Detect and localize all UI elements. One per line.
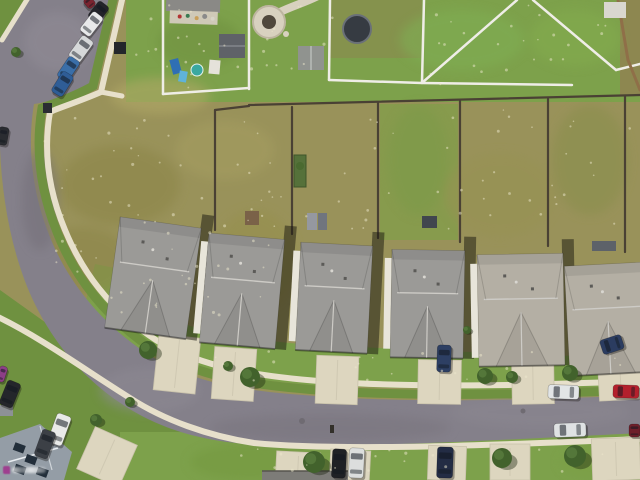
weed-speckle <box>505 367 508 370</box>
weed-speckle <box>529 199 532 202</box>
weed-speckle <box>600 32 603 35</box>
weed-speckle <box>351 228 353 230</box>
weed-speckle <box>364 219 367 222</box>
weed-speckle <box>452 116 455 119</box>
weed-speckle <box>194 283 196 285</box>
weed-speckle <box>187 87 189 89</box>
tree-highlight <box>564 367 572 375</box>
weed-speckle <box>443 43 446 46</box>
weed-speckle <box>562 58 564 60</box>
weed-speckle <box>167 135 169 137</box>
maroon-car-right-edge <box>629 424 640 439</box>
tree-highlight <box>126 398 131 403</box>
roof-hip-shade <box>477 253 563 264</box>
roof-hip-shade <box>392 249 465 260</box>
weed-speckle <box>291 67 293 69</box>
weed-speckle <box>421 352 424 355</box>
rear-window <box>350 469 362 474</box>
weed-speckle <box>436 191 439 194</box>
weed-speckle <box>497 130 500 133</box>
weed-speckle <box>334 467 336 469</box>
tree-highlight <box>224 362 229 367</box>
weed-speckle <box>226 268 229 271</box>
weed-speckle <box>280 196 282 198</box>
ac-unit <box>318 213 327 230</box>
house-3 <box>288 228 384 355</box>
tree-highlight <box>305 453 316 464</box>
weed-speckle <box>552 34 555 37</box>
windshield <box>631 426 639 429</box>
roof-vent <box>413 269 416 272</box>
weed-speckle <box>268 244 270 246</box>
weed-speckle <box>330 469 332 471</box>
house-6 <box>563 247 640 376</box>
ac-unit <box>307 213 317 230</box>
weed-speckle <box>446 147 448 149</box>
rear-window <box>570 387 575 398</box>
weed-speckle <box>74 117 77 120</box>
weed-speckle <box>247 220 249 222</box>
weed-speckle <box>510 25 513 28</box>
weed-speckle <box>248 172 250 174</box>
weed-speckle <box>523 40 525 42</box>
weed-speckle <box>113 150 115 152</box>
weed-speckle <box>273 225 275 227</box>
weed-speckle <box>154 48 157 51</box>
navy-van-bottom <box>436 447 455 480</box>
shed-2 <box>298 46 324 70</box>
weed-speckle <box>250 208 252 210</box>
weed-speckle <box>269 162 271 164</box>
red-car-street <box>613 385 640 401</box>
weed-speckle <box>374 147 377 150</box>
weed-speckle <box>448 228 450 230</box>
car-body <box>613 385 639 399</box>
white-car-street-north <box>548 384 582 401</box>
weed-speckle <box>215 357 217 359</box>
tree-highlight <box>507 372 513 378</box>
weed-speckle <box>80 250 82 252</box>
rear-window <box>576 424 581 435</box>
manhole-cover <box>521 409 526 414</box>
top-house <box>165 0 220 25</box>
rear-window <box>438 469 451 474</box>
weed-speckle <box>61 187 63 189</box>
weed-speckle <box>143 282 145 284</box>
rear-window <box>631 387 635 397</box>
weed-speckle <box>244 121 246 123</box>
weed-speckle <box>372 357 374 359</box>
weed-speckle <box>223 224 226 227</box>
weed-speckle <box>466 378 467 379</box>
car-body <box>548 384 579 399</box>
weed-speckle <box>493 171 495 173</box>
weed-speckle <box>359 356 361 358</box>
weed-speckle <box>237 163 239 165</box>
tree-highlight <box>91 415 97 421</box>
weed-speckle <box>201 197 204 200</box>
weed-speckle <box>454 372 456 374</box>
mailbox-post <box>330 425 334 433</box>
kiddie-pool <box>191 64 203 76</box>
weed-speckle <box>222 363 224 365</box>
windshield <box>553 386 560 397</box>
watermark-text-illegible <box>12 467 46 473</box>
weed-speckle <box>268 191 270 193</box>
weed-speckle <box>185 283 187 285</box>
weed-speckle <box>257 133 259 135</box>
weed-speckle <box>147 50 149 52</box>
weed-speckle <box>217 264 220 267</box>
weed-speckle <box>459 212 462 215</box>
weed-speckle <box>404 452 407 455</box>
weed-speckle <box>266 64 268 66</box>
weed-speckle <box>250 67 253 70</box>
weed-speckle <box>156 306 158 308</box>
roof-vent <box>617 296 620 299</box>
weed-speckle <box>257 448 259 450</box>
trampoline <box>343 15 371 43</box>
windshield <box>351 453 363 460</box>
weed-speckle <box>563 193 566 196</box>
weed-speckle <box>178 9 180 11</box>
weed-speckle <box>135 54 137 56</box>
weed-speckle <box>614 357 616 359</box>
weed-speckle <box>100 175 102 177</box>
weed-speckle <box>188 277 191 280</box>
weed-speckle <box>567 44 570 47</box>
weed-speckle <box>218 313 221 316</box>
weed-speckle <box>505 68 508 71</box>
weed-speckle <box>156 302 158 304</box>
weed-speckle <box>166 66 168 68</box>
weed-speckle <box>358 363 360 365</box>
doghouse <box>245 211 259 225</box>
weed-speckle <box>291 469 294 472</box>
weed-speckle <box>538 14 540 16</box>
weed-speckle <box>388 192 390 194</box>
roof-vent <box>503 274 506 277</box>
weed-speckle <box>450 21 452 23</box>
weed-speckle <box>252 240 255 243</box>
weed-speckle <box>198 43 200 45</box>
rear-window <box>631 433 639 435</box>
weed-speckle <box>267 350 270 353</box>
weed-speckle <box>253 379 255 381</box>
weed-speckle <box>44 140 47 143</box>
weed-speckle <box>186 35 188 37</box>
weed-speckle <box>374 455 376 457</box>
weed-speckle <box>263 266 265 268</box>
roof-vent <box>253 270 256 273</box>
weed-speckle <box>120 311 122 313</box>
weed-speckle <box>533 59 535 61</box>
weed-speckle <box>619 364 621 366</box>
windshield <box>439 350 450 356</box>
weed-speckle <box>130 147 132 149</box>
tree-highlight <box>464 327 468 331</box>
weed-speckle <box>303 63 305 65</box>
weed-speckle <box>171 248 172 249</box>
weed-speckle <box>92 178 95 181</box>
weed-speckle <box>184 61 187 64</box>
shed-1 <box>219 34 245 58</box>
weed-speckle <box>261 199 263 201</box>
weed-speckle <box>306 464 308 466</box>
weed-speckle <box>369 119 371 121</box>
aerial-neighborhood-photo <box>0 0 640 480</box>
weed-speckle <box>435 13 438 16</box>
weed-speckle <box>55 261 57 263</box>
rear-window <box>438 364 449 368</box>
windshield <box>334 454 345 460</box>
watermark <box>3 466 46 474</box>
weed-speckle <box>392 133 393 134</box>
weed-speckle <box>388 449 390 451</box>
weed-speckle <box>403 460 405 462</box>
weed-speckle <box>463 32 466 35</box>
weed-speckle <box>602 453 604 455</box>
weed-speckle <box>138 155 139 156</box>
driveway-b6 <box>591 437 640 480</box>
tree-highlight <box>566 447 577 458</box>
weed-speckle <box>149 279 152 282</box>
weed-speckle <box>537 39 539 41</box>
weed-speckle <box>109 201 112 204</box>
tree-highlight <box>479 370 487 378</box>
weed-speckle <box>279 453 282 456</box>
weed-speckle <box>190 11 192 13</box>
weed-speckle <box>62 214 64 216</box>
weed-speckle <box>203 50 205 52</box>
weed-speckle <box>136 127 138 129</box>
weed-speckle <box>305 215 307 217</box>
weed-speckle <box>344 172 346 174</box>
driveway-1 <box>153 334 201 394</box>
shed-3 <box>604 2 626 18</box>
weed-speckle <box>338 200 340 202</box>
weed-speckle <box>391 373 393 375</box>
roof-vent <box>321 263 324 266</box>
weed-speckle <box>223 44 225 46</box>
weed-speckle <box>483 198 485 200</box>
manhole-cover <box>299 418 305 424</box>
weed-speckle <box>76 270 78 272</box>
mailbox <box>43 103 52 113</box>
weed-speckle <box>322 43 325 46</box>
weed-speckle <box>366 209 369 212</box>
weed-speckle <box>525 375 528 378</box>
weed-speckle <box>593 174 595 176</box>
rear-window <box>333 470 344 475</box>
weed-speckle <box>262 50 265 53</box>
weed-speckle <box>190 73 192 75</box>
windshield <box>439 452 452 459</box>
weed-speckle <box>438 42 440 44</box>
tree-highlight <box>242 369 252 379</box>
weed-speckle <box>531 126 533 128</box>
roof-vent <box>531 287 534 290</box>
weed-speckle <box>236 66 239 69</box>
weed-speckle <box>565 153 567 155</box>
tree-highlight <box>494 450 504 460</box>
weed-speckle <box>539 213 542 216</box>
weed-speckle <box>300 5 302 7</box>
weed-speckle <box>272 360 275 363</box>
weed-speckle <box>554 196 556 198</box>
weed-speckle <box>144 221 146 223</box>
weed-speckle <box>260 296 262 298</box>
weed-speckle <box>240 454 243 457</box>
weed-speckle <box>597 24 599 26</box>
weed-speckle <box>367 469 370 472</box>
watermark-logo-icon <box>3 466 10 474</box>
weed-speckle <box>155 304 158 307</box>
weed-speckle <box>159 162 161 164</box>
weed-speckle <box>497 43 499 45</box>
weed-speckle <box>473 64 476 67</box>
weed-speckle <box>266 38 269 41</box>
weed-speckle <box>271 31 272 32</box>
weed-speckle <box>613 223 615 225</box>
white-suv-bottom <box>348 448 367 480</box>
weed-speckle <box>66 169 67 170</box>
weed-speckle <box>177 37 180 40</box>
weed-speckle <box>573 121 575 123</box>
weed-speckle <box>95 257 97 259</box>
weed-speckle <box>252 366 254 368</box>
garden-bed <box>294 155 306 187</box>
weed-speckle <box>503 109 504 110</box>
weed-speckle <box>137 214 139 216</box>
car-body <box>554 422 586 437</box>
weed-speckle <box>207 296 209 298</box>
weed-speckle <box>441 370 444 373</box>
roof-vent <box>437 283 440 286</box>
weed-speckle <box>480 70 483 73</box>
weed-speckle <box>179 164 181 166</box>
windshield <box>618 386 624 396</box>
weed-speckle <box>452 82 453 83</box>
white-car-street-south <box>554 422 589 439</box>
weed-speckle <box>143 119 146 122</box>
top-house-patio <box>169 10 217 25</box>
weed-speckle <box>555 203 557 205</box>
tree-highlight <box>12 48 17 53</box>
weed-speckle <box>561 470 564 473</box>
navy-car-driveway-4 <box>436 345 453 375</box>
weed-speckle <box>508 116 510 118</box>
weed-speckle <box>528 5 530 7</box>
weed-speckle <box>366 379 369 382</box>
weed-speckle <box>430 73 431 74</box>
house-4 <box>383 235 476 359</box>
weed-speckle <box>550 58 553 61</box>
windshield <box>560 425 567 436</box>
roof-vent <box>590 285 593 288</box>
weed-speckle <box>628 127 631 130</box>
weed-speckle <box>172 213 175 216</box>
weed-speckle <box>444 465 447 468</box>
weed-speckle <box>482 180 484 182</box>
weed-speckle <box>439 83 441 85</box>
roof-vent <box>344 277 347 280</box>
weed-speckle <box>120 291 123 294</box>
weed-speckle <box>107 132 110 135</box>
weed-speckle <box>74 244 77 247</box>
roof-vent <box>165 257 168 260</box>
weed-speckle <box>131 163 134 166</box>
weed-speckle <box>538 449 540 451</box>
weed-speckle <box>489 214 491 216</box>
weed-speckle <box>212 311 215 314</box>
ac-unit-pair <box>592 241 616 251</box>
weed-speckle <box>61 240 64 243</box>
weed-speckle <box>273 27 276 30</box>
black-suv-bottom <box>331 449 349 480</box>
weed-speckle <box>275 64 277 66</box>
weed-speckle <box>261 215 263 217</box>
weed-speckle <box>331 17 334 20</box>
weed-speckle <box>551 185 553 187</box>
house-5 <box>470 239 576 367</box>
weed-speckle <box>376 121 378 123</box>
grill <box>422 216 437 228</box>
weed-speckle <box>272 196 274 198</box>
weed-speckle <box>154 221 156 223</box>
weed-speckle <box>355 366 357 368</box>
driveway-3 <box>315 355 359 404</box>
roof-vent <box>230 255 233 258</box>
aerial-photo-canvas <box>0 0 640 480</box>
weed-speckle <box>508 192 511 195</box>
weed-speckle <box>167 232 170 235</box>
weed-speckle <box>479 354 482 357</box>
weed-speckle <box>298 6 300 8</box>
white-vinyl-fence <box>329 0 330 80</box>
weed-speckle <box>127 204 130 207</box>
weed-speckle <box>569 125 571 127</box>
weed-speckle <box>195 265 198 268</box>
weed-speckle <box>604 25 606 27</box>
weed-speckle <box>208 231 211 234</box>
weed-speckle <box>181 275 182 276</box>
weed-speckle <box>460 189 463 192</box>
roof-vent <box>141 240 144 243</box>
tree-highlight <box>141 343 150 352</box>
weed-speckle <box>362 227 364 229</box>
weed-speckle <box>168 4 170 6</box>
weed-speckle <box>55 249 58 252</box>
mailbox-cluster <box>114 42 126 54</box>
weed-speckle <box>531 351 533 353</box>
weed-speckle <box>110 297 112 299</box>
weed-speckle <box>273 466 276 469</box>
weed-speckle <box>432 454 435 457</box>
weed-speckle <box>590 162 592 164</box>
weed-speckle <box>149 17 152 20</box>
white-table <box>208 60 220 75</box>
